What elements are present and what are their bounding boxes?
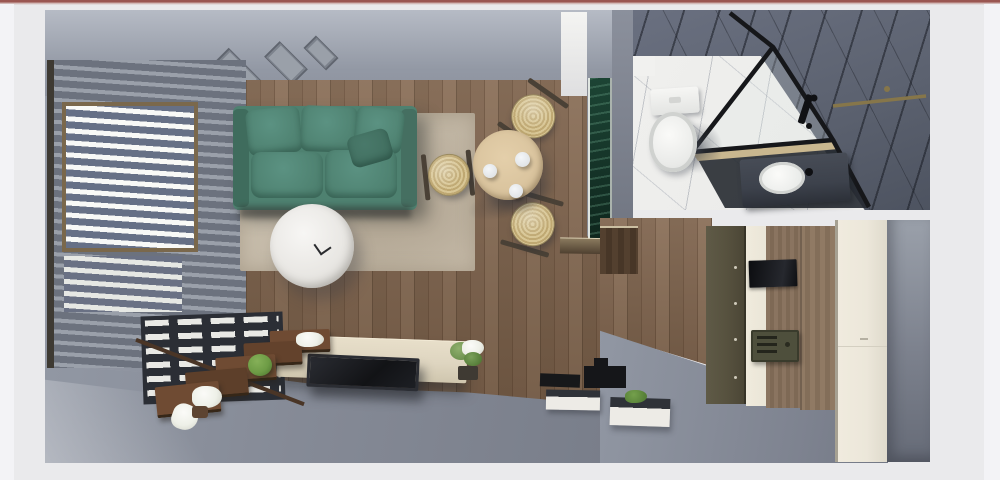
coat-hook-icon <box>734 302 737 305</box>
page-edge-left <box>0 4 14 480</box>
coat-hook-icon <box>734 266 737 269</box>
plate <box>483 164 497 178</box>
window-lit-panel <box>62 102 198 252</box>
intercom-slats <box>757 336 777 354</box>
floor-mat <box>584 366 626 388</box>
floor-mat-notch <box>594 358 608 368</box>
intercom-box <box>751 330 799 362</box>
entry-door <box>766 226 800 408</box>
coat-hook-icon <box>734 338 737 341</box>
coffee-table-decor <box>313 237 331 255</box>
plate <box>515 152 530 167</box>
hall-cabinet <box>600 226 638 274</box>
wardrobe-handle <box>860 338 868 340</box>
coffee-table <box>270 204 354 288</box>
accent-bar <box>0 0 1000 5</box>
sofa <box>233 106 417 214</box>
east-outer-wall <box>887 220 930 462</box>
window-lit-panel-lower <box>64 256 182 312</box>
toilet <box>643 84 713 184</box>
floorplan-viewport[interactable] <box>0 0 1000 480</box>
plant-pot <box>458 366 478 380</box>
flower-pot <box>192 406 208 418</box>
wardrobe-seam <box>838 346 890 347</box>
console-plant <box>448 340 488 384</box>
toilet-bowl <box>649 112 697 172</box>
coat-wall <box>706 226 746 404</box>
coat-hook-icon <box>734 376 737 379</box>
page-edge-right <box>984 4 1000 480</box>
dining-chair <box>421 150 476 201</box>
plate <box>509 184 523 198</box>
entry-tray <box>546 390 600 411</box>
wall-panel-wood <box>800 226 835 410</box>
sofa-seat-cushion <box>251 152 323 198</box>
living-room <box>45 10 633 463</box>
faucet-icon <box>805 168 813 176</box>
plant <box>248 354 272 376</box>
mirror-panel <box>749 259 798 288</box>
intercom-dot <box>785 342 790 347</box>
dining-table <box>473 130 543 200</box>
towel-bar <box>833 96 926 106</box>
plant-shelf <box>140 320 340 435</box>
wall-strip-cream <box>746 226 766 406</box>
dining-set <box>415 80 585 260</box>
sofa-back-cushion <box>245 105 304 156</box>
floor-mat <box>540 373 580 387</box>
east-wall <box>612 10 633 250</box>
wardrobe <box>835 220 890 462</box>
bathroom <box>633 10 930 210</box>
